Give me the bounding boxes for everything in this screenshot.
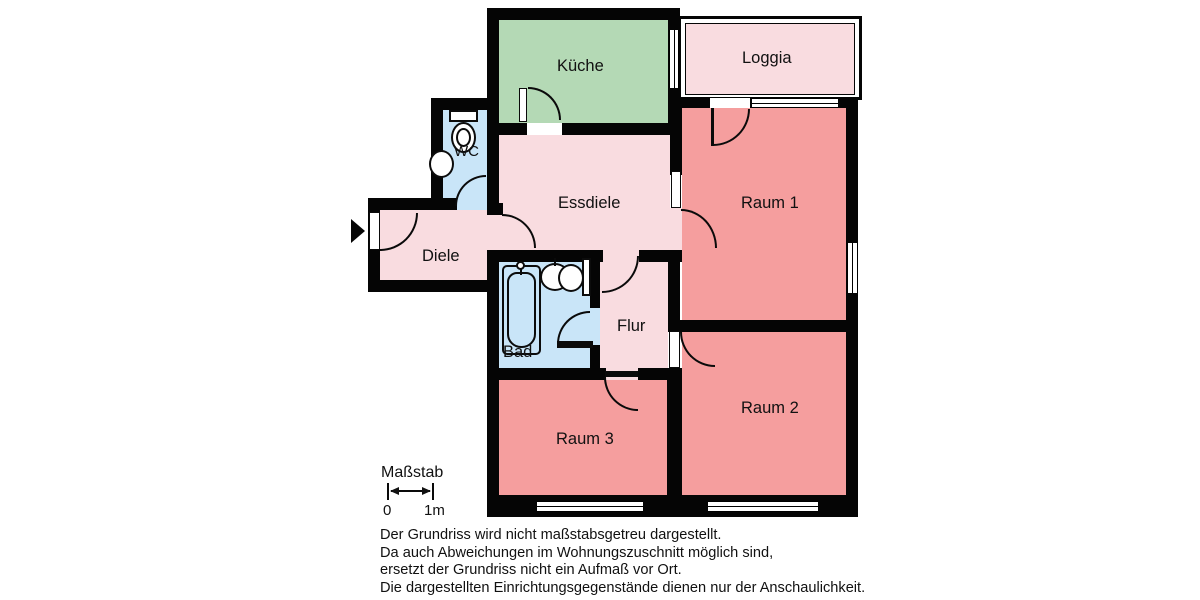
room-label-diele: Diele [422,247,460,266]
raum2-door-leaf [669,331,680,368]
scale-start: 0 [383,502,391,519]
raum1-door-leaf [671,171,681,208]
kueche-window [669,30,679,88]
bathtub-faucet-icon [516,261,525,270]
room-label-raum1: Raum 1 [741,194,799,213]
wall-diele-bottom [368,280,499,292]
wc-toilet-cistern-icon [449,110,478,122]
wall-essdiele-left [487,110,499,215]
scale-end: 1m [424,502,445,519]
entrance-door-leaf [369,212,380,250]
kueche-door-opening [527,123,562,135]
wall-raum2-raum3 [667,380,682,495]
loggia-window [752,98,838,108]
room-label-flur: Flur [617,317,645,336]
wall-top [487,8,680,20]
bad-door-opening [590,308,600,345]
disclaimer-line-4: Die dargestellten Einrichtungsgegenständ… [380,580,865,598]
bad-sink-tap-line [554,258,556,266]
raum2-window [708,501,818,512]
scale-tick-left [387,483,389,500]
room-label-bad: Bad [503,343,532,362]
wall-raum1-raum2 [668,320,858,332]
scale-tick-right [432,483,434,500]
wc-sink-icon [429,150,454,178]
disclaimer-line-1: Der Grundriss wird nicht maßstabsgetreu … [380,527,865,545]
raum3-window [537,501,643,512]
raum1-window [847,243,858,293]
scale-arrowhead-right-icon [422,487,431,495]
room-label-kueche: Küche [557,57,604,76]
diele-essdiele-passage [487,215,499,250]
entrance-arrow-icon [351,219,365,243]
wall-right-outer [846,97,858,517]
room-label-wc: WC [454,143,479,160]
room-label-raum3: Raum 3 [556,430,614,449]
bad-toilet-bowl-icon [558,264,584,292]
scale-arrowhead-left-icon [390,487,399,495]
disclaimer-line-3: ersetzt der Grundriss nicht ein Aufmaß v… [380,562,865,580]
wall-left-lower [487,250,499,517]
scale-label: Maßstab [381,464,443,482]
floorplan-canvas: Küche Loggia WC Essdiele Diele Raum 1 Ba… [0,0,1200,600]
loggia-door-opening [710,98,750,108]
room-label-essdiele: Essdiele [558,194,620,213]
disclaimer-line-2: Da auch Abweichungen im Wohnungszuschnit… [380,545,865,563]
wall-kueche-bottom [487,123,680,135]
wall-raum1-left [670,97,682,175]
room-label-loggia: Loggia [742,49,792,68]
wall-stub-essdiele [487,203,503,215]
kueche-door-leaf [519,88,527,122]
wall-flur-bottom-right [638,368,682,380]
room-label-raum2: Raum 2 [741,399,799,418]
disclaimer-text: Der Grundriss wird nicht maßstabsgetreu … [380,527,865,597]
bathtub-inner-icon [507,272,536,348]
wall-bad-bottom [487,368,608,380]
room-raum1 [682,108,846,320]
